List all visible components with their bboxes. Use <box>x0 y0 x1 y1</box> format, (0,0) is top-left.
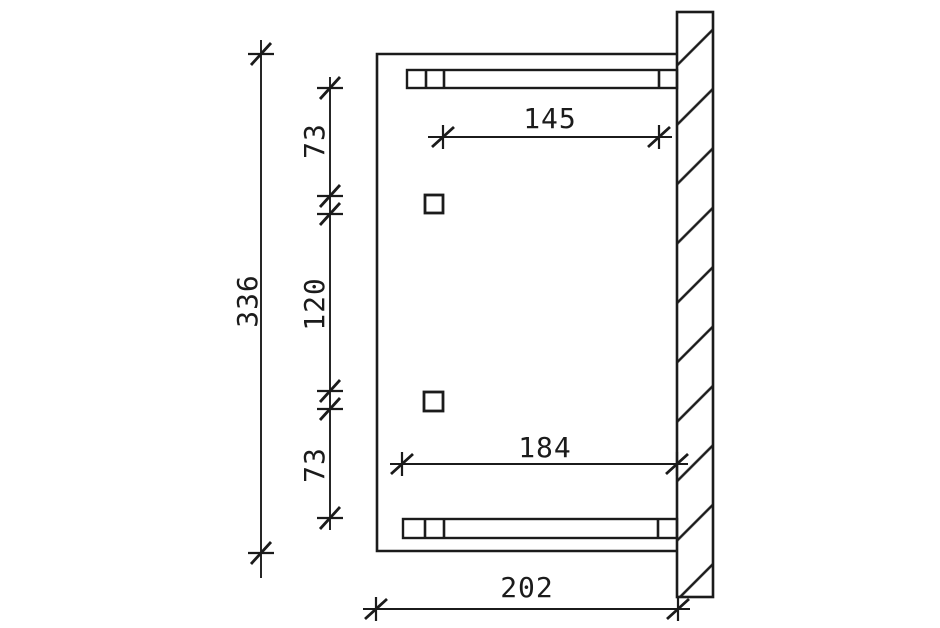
dim-label-depth-middle-segment: 120 <box>298 277 331 331</box>
top-beam <box>407 70 677 88</box>
dim-label-width-beam-to-wall: 184 <box>518 431 572 464</box>
post-bottom <box>424 392 443 411</box>
post-top <box>425 195 443 213</box>
wall-section-hatched <box>677 12 713 597</box>
structure-geometry <box>377 12 713 597</box>
dim-label-width-post-to-wall: 145 <box>523 102 577 135</box>
dim-label-depth-bottom-segment: 73 <box>298 447 331 483</box>
dim-label-depth-total: 336 <box>231 274 264 328</box>
dim-label-depth-top-segment: 73 <box>298 123 331 159</box>
dim-label-width-total: 202 <box>500 571 554 604</box>
canopy-technical-drawing: 336 73 120 73 145 184 202 <box>0 0 940 628</box>
drawing-page: 336 73 120 73 145 184 202 <box>0 0 940 628</box>
